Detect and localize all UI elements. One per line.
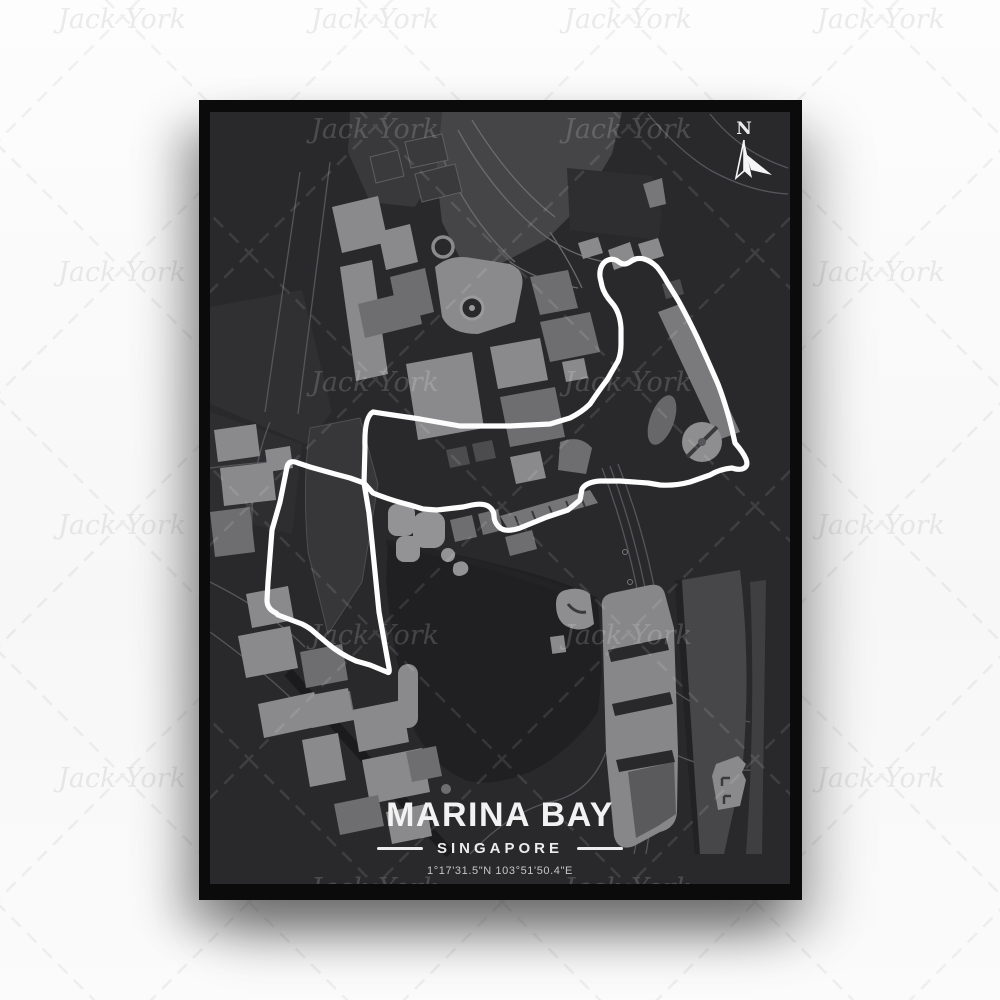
poster-subtitle-row: SINGAPORE [210, 840, 790, 857]
pit-building [450, 490, 598, 556]
compass-north-label: N [736, 119, 752, 139]
compass-rose: N [714, 116, 778, 192]
circuit-map [210, 112, 790, 884]
poster-title-block: MARINA BAY SINGAPORE 1°17'31.5"N 103°51'… [210, 798, 790, 877]
compass-needle-icon [736, 140, 772, 178]
poster: N MARINA BAY SINGAPORE 1°17'31.5"N 103°5… [210, 112, 790, 884]
subtitle-dash-right [577, 847, 623, 850]
poster-coordinates: 1°17'31.5"N 103°51'50.4"E [210, 865, 790, 877]
poster-title: MARINA BAY [210, 798, 790, 832]
map-shading-layer [210, 112, 666, 783]
poster-subtitle: SINGAPORE [437, 840, 563, 857]
subtitle-dash-left [377, 847, 423, 850]
product-photo-stage: Jack York [0, 0, 1000, 1000]
bay-area [386, 540, 602, 783]
poster-frame: N MARINA BAY SINGAPORE 1°17'31.5"N 103°5… [199, 100, 802, 900]
fountain-of-wealth [433, 237, 453, 257]
singapore-flyer [682, 422, 722, 462]
